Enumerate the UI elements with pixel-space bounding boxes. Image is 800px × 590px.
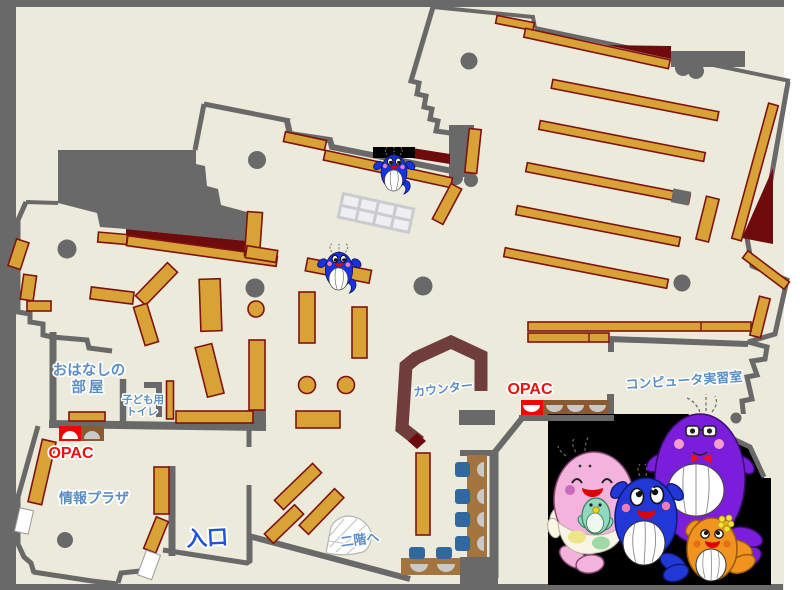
svg-text:OPAC: OPAC bbox=[48, 445, 93, 462]
svg-text:入口: 入口 bbox=[186, 526, 229, 551]
svg-text:おはなしの: おはなしの bbox=[53, 362, 126, 379]
svg-text:情報プラザ: 情報プラザ bbox=[59, 490, 129, 506]
svg-text:子ども用: 子ども用 bbox=[122, 393, 164, 406]
svg-text:OPAC: OPAC bbox=[507, 381, 552, 398]
svg-text:部屋: 部屋 bbox=[72, 378, 107, 396]
svg-text:トイレ: トイレ bbox=[126, 406, 158, 418]
